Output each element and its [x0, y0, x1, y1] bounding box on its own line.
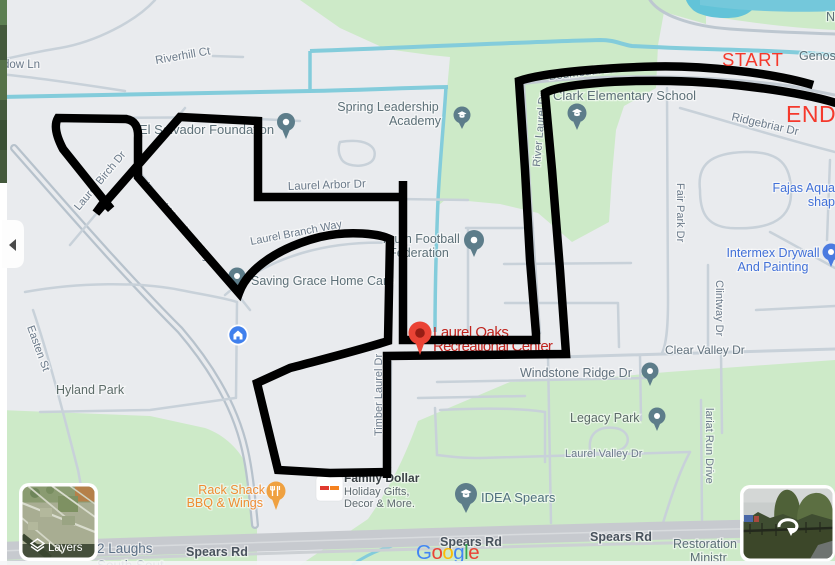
svg-text:END: END: [786, 101, 835, 127]
svg-text:Layers: Layers: [48, 542, 83, 554]
svg-text:Restoration: Restoration: [673, 537, 737, 551]
svg-text:dow Ln: dow Ln: [3, 59, 40, 71]
svg-text:Spears Rd: Spears Rd: [590, 530, 652, 544]
svg-text:And Painting: And Painting: [738, 260, 809, 274]
svg-text:Rack Shack: Rack Shack: [198, 483, 265, 497]
svg-text:Legacy Park: Legacy Park: [570, 411, 640, 425]
svg-text:2 Laughs: 2 Laughs: [97, 541, 153, 556]
svg-text:Spears Rd: Spears Rd: [186, 545, 248, 559]
svg-text:Academy: Academy: [389, 114, 442, 128]
svg-text:Clear Valley Dr: Clear Valley Dr: [665, 343, 745, 357]
svg-text:Spring Leadership: Spring Leadership: [337, 100, 439, 114]
svg-text:BBQ & Wings: BBQ & Wings: [187, 496, 263, 510]
svg-text:Windstone Ridge Dr: Windstone Ridge Dr: [520, 366, 632, 380]
svg-text:Laurel Valley Dr: Laurel Valley Dr: [565, 448, 643, 460]
svg-text:IDEA Spears: IDEA Spears: [481, 490, 556, 505]
svg-text:Fajas Aqua: Fajas Aqua: [772, 181, 835, 195]
svg-text:Clintway Dr: Clintway Dr: [713, 280, 725, 337]
svg-text:shap: shap: [808, 195, 835, 209]
svg-text:Decor & More.: Decor & More.: [344, 498, 415, 510]
svg-text:Saving Grace Home Care: Saving Grace Home Care: [251, 274, 394, 288]
svg-text:N: N: [826, 10, 835, 24]
svg-text:lariat Run Drive: lariat Run Drive: [703, 408, 715, 484]
svg-text:START: START: [722, 49, 783, 70]
svg-text:Genos: Genos: [799, 49, 835, 63]
svg-text:Intermex Drywall: Intermex Drywall: [726, 246, 819, 260]
svg-text:Fair Park Dr: Fair Park Dr: [674, 183, 686, 243]
svg-text:Google: Google: [416, 541, 479, 564]
svg-text:Federation: Federation: [389, 246, 449, 260]
svg-text:Hyland Park: Hyland Park: [56, 383, 125, 397]
svg-text:Clark Elementary School: Clark Elementary School: [553, 88, 696, 103]
svg-text:Holiday Gifts,: Holiday Gifts,: [344, 486, 409, 498]
